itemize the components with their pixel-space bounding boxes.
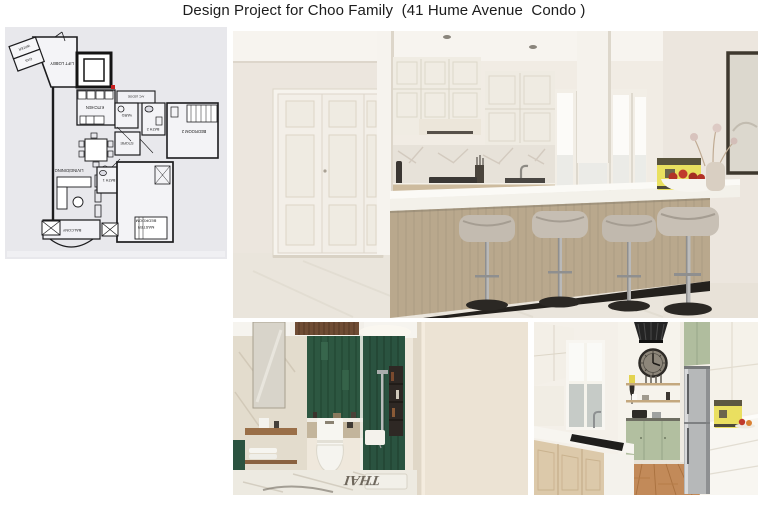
green-tall-cabinet	[684, 322, 710, 366]
svg-text:STORE: STORE	[120, 141, 134, 146]
kettle	[632, 410, 647, 418]
floor-plan: LIFT LOBBY WATER GAS	[5, 27, 227, 259]
vanity-mirror	[253, 322, 285, 408]
photo-pantry-kitchen	[534, 322, 758, 495]
photo-bathroom: THAI	[233, 322, 528, 495]
plan-ac-ledge: A/C LEDGE	[117, 91, 155, 103]
floor-plan-drawing: LIFT LOBBY WATER GAS	[5, 27, 227, 259]
svg-text:YARD: YARD	[122, 113, 133, 118]
svg-text:MASTER: MASTER	[138, 225, 155, 230]
pantry-render-image	[534, 322, 758, 495]
slide-title: Design Project for Choo Family (41 Hume …	[0, 2, 768, 19]
plan-master-bedroom: MASTER BEDROOM	[117, 162, 173, 242]
svg-text:BATH 1: BATH 1	[103, 178, 116, 182]
tall-column	[577, 31, 611, 163]
photo-kitchen-main	[233, 31, 758, 318]
wall-artwork	[728, 53, 758, 173]
plan-kitchen: KITCHEN	[77, 90, 115, 125]
plan-store: STORE	[115, 132, 140, 155]
plan-lift-shaft	[77, 53, 111, 87]
svg-text:A/C LEDGE: A/C LEDGE	[128, 95, 145, 99]
towel	[365, 430, 385, 445]
slide: Design Project for Choo Family (41 Hume …	[0, 0, 768, 530]
side-wall	[413, 322, 528, 495]
plan-bedroom2: BEDROOM 2	[167, 103, 218, 158]
wall-clock	[640, 350, 667, 377]
svg-text:KITCHEN: KITCHEN	[86, 105, 104, 110]
sink	[505, 178, 545, 183]
toilet-roll-holder	[347, 422, 353, 428]
ceiling-wood-slats	[290, 322, 364, 336]
door-handle	[323, 169, 326, 172]
yellow-canister	[629, 375, 635, 383]
bathroom-floor: THAI	[233, 470, 417, 495]
plan-entry-marker	[111, 85, 115, 89]
kitchen-render-image	[233, 31, 758, 318]
plan-bath2: BATH 2	[142, 103, 165, 135]
svg-text:BEDROOM: BEDROOM	[136, 219, 157, 224]
svg-text:LIFT LOBBY: LIFT LOBBY	[50, 61, 74, 66]
shower-area	[360, 336, 405, 476]
shower-rail	[381, 372, 384, 432]
fridge	[684, 366, 710, 494]
svg-text:BATH 2: BATH 2	[147, 127, 160, 131]
bottle	[396, 161, 402, 186]
hob	[429, 177, 477, 184]
svg-text:LIVING/DINING: LIVING/DINING	[55, 168, 84, 173]
pantry-coffee-machine	[714, 400, 742, 428]
plan-yard: YARD	[115, 103, 138, 128]
svg-text:BEDROOM 2: BEDROOM 2	[181, 129, 206, 134]
bathroom-render-image: THAI	[233, 322, 528, 495]
entry-door	[273, 89, 383, 258]
floor-rug-text: THAI	[342, 472, 383, 488]
glass-panel-edge	[360, 336, 363, 476]
svg-text:BALCONY: BALCONY	[62, 228, 81, 233]
